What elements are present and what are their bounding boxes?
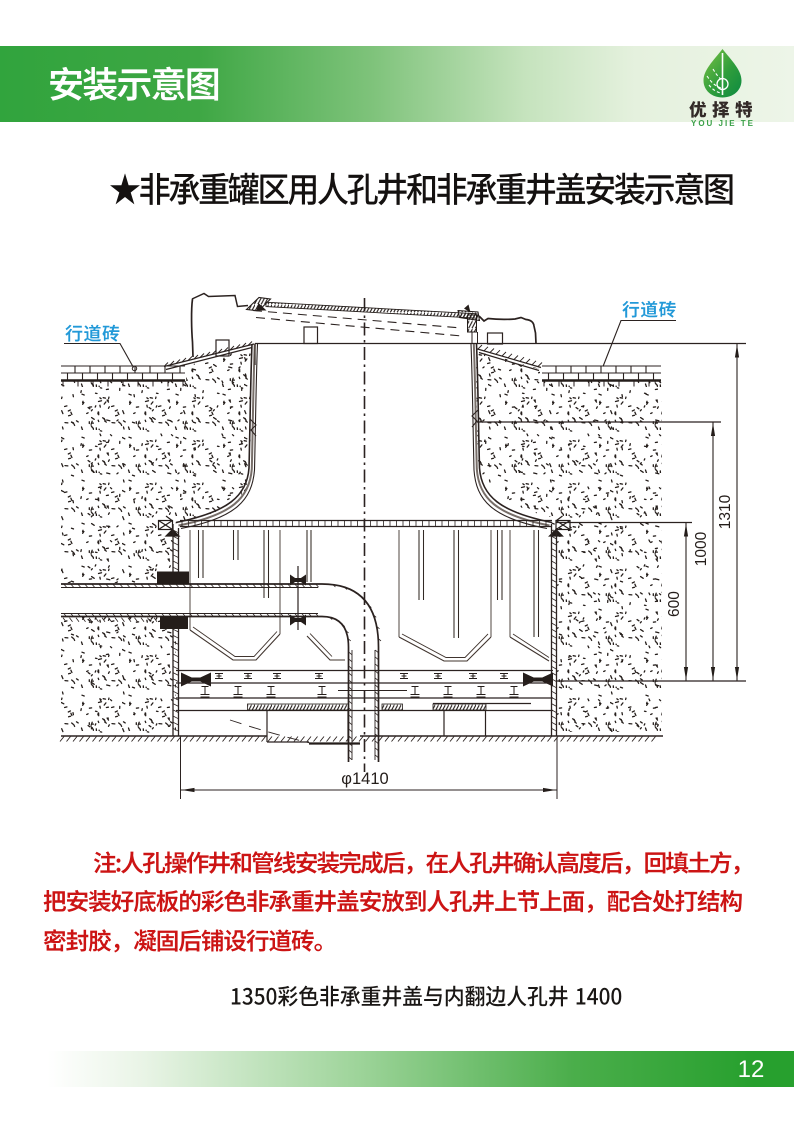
svg-text:YOU JIE TE: YOU JIE TE: [691, 119, 755, 128]
svg-text:φ1410: φ1410: [341, 770, 388, 788]
svg-text:1000: 1000: [693, 531, 710, 566]
svg-text:1310: 1310: [717, 494, 734, 529]
svg-text:600: 600: [666, 591, 683, 617]
